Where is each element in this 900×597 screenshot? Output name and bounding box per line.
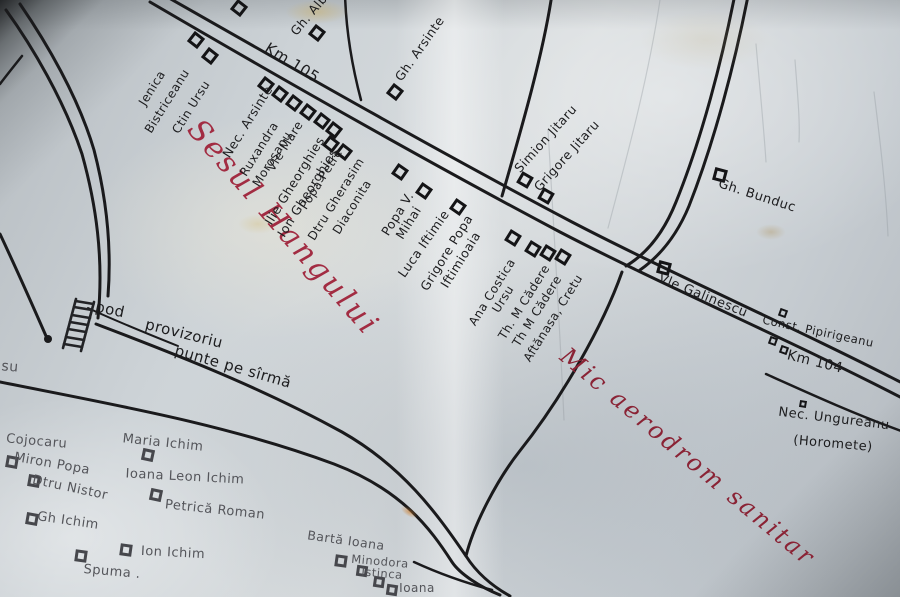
house-marker — [74, 549, 88, 563]
house-marker — [119, 543, 133, 557]
house-marker — [386, 584, 398, 596]
house-marker — [141, 448, 155, 462]
north-road-stroke-b — [640, 0, 748, 270]
paper-crease-lines — [548, 0, 888, 420]
lower-left-road — [0, 234, 46, 336]
map-photo: Sesul HanguluiMic aerodrom sanitarJenica… — [0, 0, 900, 597]
house-marker — [149, 488, 163, 502]
arsinte-lane — [345, 0, 361, 100]
road-dot — [44, 335, 52, 343]
map-label-ioana: Ioana — [399, 582, 435, 594]
south-road — [466, 272, 622, 556]
ladder-bridge-icon — [63, 299, 94, 351]
house-marker — [334, 554, 348, 568]
left-road-branch — [0, 56, 22, 84]
left-road-stroke-b — [20, 4, 109, 296]
map-label-ion-ichim: Ion Ichim — [141, 545, 206, 561]
map-label-su: su — [1, 359, 19, 374]
